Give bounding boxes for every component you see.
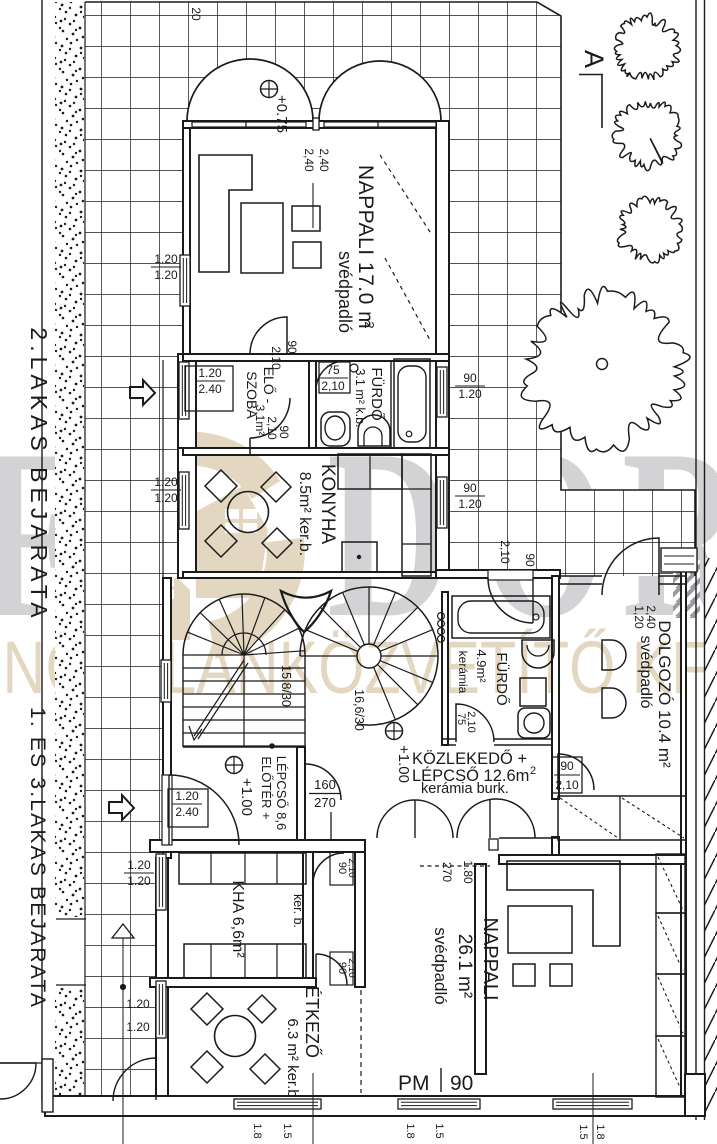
svg-text:KHA 6,6m²: KHA 6,6m² <box>229 880 246 958</box>
svg-text:6.3 m² ker.b: 6.3 m² ker.b <box>284 1018 301 1097</box>
svg-text:1.80: 1.80 <box>461 860 475 884</box>
svg-text:+1.00: +1.00 <box>395 745 412 783</box>
svg-text:3,1m²: 3,1m² <box>253 405 267 436</box>
svg-text:26.1 m²: 26.1 m² <box>454 934 475 998</box>
svg-text:160: 160 <box>314 777 336 792</box>
svg-text:1.5: 1.5 <box>577 1124 589 1139</box>
svg-text:1.5: 1.5 <box>433 1123 445 1138</box>
svg-text:75: 75 <box>326 363 340 377</box>
svg-text:2,10: 2,10 <box>265 416 279 440</box>
svg-text:90: 90 <box>560 759 574 773</box>
svg-text:1. ES 3.LAKAS BEJARATA: 1. ES 3.LAKAS BEJARATA <box>26 707 49 1009</box>
svg-text:NAPPALI 17.0 m: NAPPALI 17.0 m <box>354 165 377 329</box>
svg-text:1.8: 1.8 <box>404 1123 416 1138</box>
svg-text:1.20: 1.20 <box>127 874 151 888</box>
svg-text:2,10: 2,10 <box>346 958 357 978</box>
svg-text:1.20: 1.20 <box>458 387 482 401</box>
svg-text:2,40: 2,40 <box>317 148 331 172</box>
svg-text:NAPPALI: NAPPALI <box>479 918 501 1001</box>
svg-text:svédpadló: svédpadló <box>431 927 450 1005</box>
svg-text:+1.00: +1.00 <box>238 778 255 816</box>
svg-text:90: 90 <box>463 481 477 495</box>
svg-text:1.20: 1.20 <box>154 252 178 266</box>
svg-text:2,10: 2,10 <box>269 346 283 370</box>
svg-text:2: 2 <box>530 765 536 777</box>
svg-text:2,10: 2,10 <box>498 540 512 564</box>
svg-text:8.5m² ker.b.: 8.5m² ker.b. <box>296 472 313 556</box>
svg-text:2.40: 2.40 <box>175 805 199 819</box>
svg-text:svédpadló: svédpadló <box>637 636 654 709</box>
svg-text:kerámia burk.: kerámia burk. <box>421 781 509 797</box>
svg-text:90: 90 <box>463 371 477 385</box>
svg-text:+0.75: +0.75 <box>273 95 290 133</box>
svg-text:DOLGOZÓ 10.4 m²: DOLGOZÓ 10.4 m² <box>655 620 674 768</box>
svg-text:2,10: 2,10 <box>346 858 357 878</box>
svg-text:kerámia: kerámia <box>456 651 470 694</box>
svg-text:1.8: 1.8 <box>251 1123 263 1138</box>
svg-text:ELŐ -: ELŐ - <box>261 367 277 404</box>
svg-text:2,10: 2,10 <box>555 778 579 792</box>
svg-text:90: 90 <box>285 340 299 354</box>
svg-text:90: 90 <box>523 553 537 567</box>
svg-text:LÉPCSŐ 8,6: LÉPCSŐ 8,6 <box>274 756 289 830</box>
svg-text:15,8/30: 15,8/30 <box>279 665 293 707</box>
svg-text:2,10: 2,10 <box>465 711 477 732</box>
svg-text:2: 2 <box>362 321 377 328</box>
svg-text:2.40: 2.40 <box>198 382 222 396</box>
svg-text:270: 270 <box>314 795 336 810</box>
svg-text:90: 90 <box>450 1072 473 1095</box>
svg-text:20: 20 <box>189 7 203 21</box>
svg-text:ELŐTÉR +: ELŐTÉR + <box>259 756 274 819</box>
svg-text:FÜRDŐ: FÜRDŐ <box>493 652 511 705</box>
svg-text:1.20: 1.20 <box>127 858 151 872</box>
svg-text:svédpadló: svédpadló <box>335 251 355 333</box>
svg-text:1.20: 1.20 <box>126 1020 150 1034</box>
svg-text:1.5: 1.5 <box>281 1123 293 1138</box>
svg-text:3.1 m² k.b.: 3.1 m² k.b. <box>353 368 367 427</box>
svg-text:2,40: 2,40 <box>644 605 658 629</box>
svg-text:1.8: 1.8 <box>594 1124 606 1139</box>
svg-text:KONYHA: KONYHA <box>317 464 338 545</box>
svg-text:1.20: 1.20 <box>154 268 178 282</box>
svg-text:KÖZLEKEDŐ +: KÖZLEKEDŐ + <box>412 749 527 768</box>
svg-text:1.20: 1.20 <box>154 475 178 489</box>
svg-text:ÉTKEZŐ: ÉTKEZŐ <box>302 986 323 1058</box>
svg-text:FÜRDŐ: FÜRDŐ <box>368 367 386 420</box>
svg-text:4.9m²: 4.9m² <box>474 649 489 683</box>
svg-text:A: A <box>579 50 609 68</box>
svg-text:PM: PM <box>398 1072 430 1095</box>
svg-text:2,40: 2,40 <box>302 148 316 172</box>
svg-text:1,20: 1,20 <box>632 605 646 629</box>
svg-text:1.20: 1.20 <box>198 366 222 380</box>
svg-text:1.20: 1.20 <box>175 789 199 803</box>
svg-text:1.20: 1.20 <box>458 497 482 511</box>
svg-text:2.LAKAS BEJARATA: 2.LAKAS BEJARATA <box>26 327 52 622</box>
svg-text:1.20: 1.20 <box>126 997 150 1011</box>
svg-text:16,6/30: 16,6/30 <box>352 689 366 731</box>
svg-text:2,10: 2,10 <box>321 379 345 393</box>
svg-text:1.20: 1.20 <box>154 491 178 505</box>
svg-text:270: 270 <box>440 862 454 882</box>
svg-text:ker. b.: ker. b. <box>291 894 305 928</box>
